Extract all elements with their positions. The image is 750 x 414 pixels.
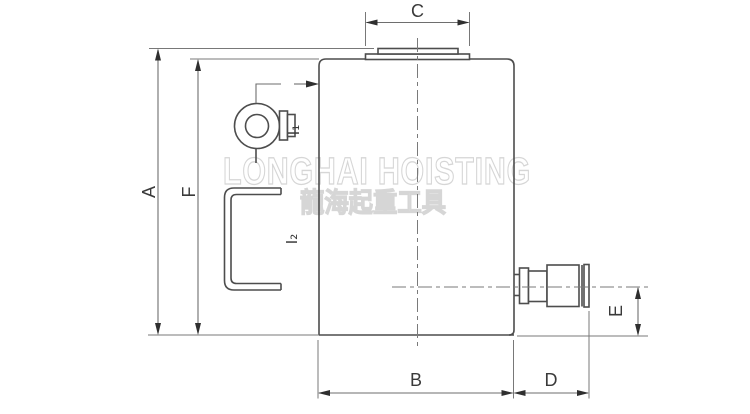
arrowhead-down-icon: [635, 324, 641, 336]
arrowhead-right-icon: [306, 81, 319, 88]
arrowhead-right-icon: [577, 390, 589, 396]
coupler-neck: [529, 271, 548, 302]
arrowhead-left-icon: [318, 390, 330, 396]
dim-label-D: D: [545, 370, 558, 390]
leader-I1-line: [256, 84, 281, 103]
callout-I2: I₂: [283, 234, 301, 244]
arrowhead-right-icon: [458, 20, 470, 26]
arrowhead-up-icon: [155, 49, 161, 61]
arrowhead-up-icon: [635, 287, 641, 299]
dim-label-F: F: [179, 187, 199, 198]
handle-outer-edge: [225, 188, 282, 290]
technical-drawing: LONGHAI HOISTING 龍海起重工具: [0, 0, 750, 414]
coupler-flange: [520, 268, 529, 304]
carry-handle: [225, 188, 282, 290]
arrowhead-up-icon: [195, 59, 201, 71]
dimension-E: E: [606, 287, 641, 336]
dim-label-B: B: [410, 370, 422, 390]
drawing-canvas: LONGHAI HOISTING 龍海起重工具: [0, 0, 750, 414]
eyebolt-ring-inner: [246, 115, 269, 138]
dim-label-A: A: [139, 186, 159, 198]
arrowhead-down-icon: [155, 323, 161, 335]
arrowhead-left-icon: [514, 390, 526, 396]
dimension-B: B: [318, 340, 514, 399]
dim-label-I2: I₂: [283, 234, 301, 244]
watermark-line2: 龍海起重工具: [300, 187, 446, 219]
dimension-D: D: [514, 311, 590, 399]
watermark-line1: LONGHAI HOISTING: [223, 151, 531, 193]
dim-label-I1: I₁: [285, 125, 303, 135]
dimension-F: F: [179, 59, 319, 335]
arrowhead-right-icon: [502, 390, 514, 396]
coupler-body: [547, 265, 579, 307]
arrowhead-down-icon: [195, 323, 201, 335]
dim-label-C: C: [411, 1, 424, 21]
coupler-end-cap: [584, 265, 589, 308]
handle-inner-edge: [231, 195, 281, 284]
dim-label-E: E: [606, 305, 626, 317]
hydraulic-coupler: [514, 265, 589, 308]
arrowhead-left-icon: [366, 20, 378, 26]
